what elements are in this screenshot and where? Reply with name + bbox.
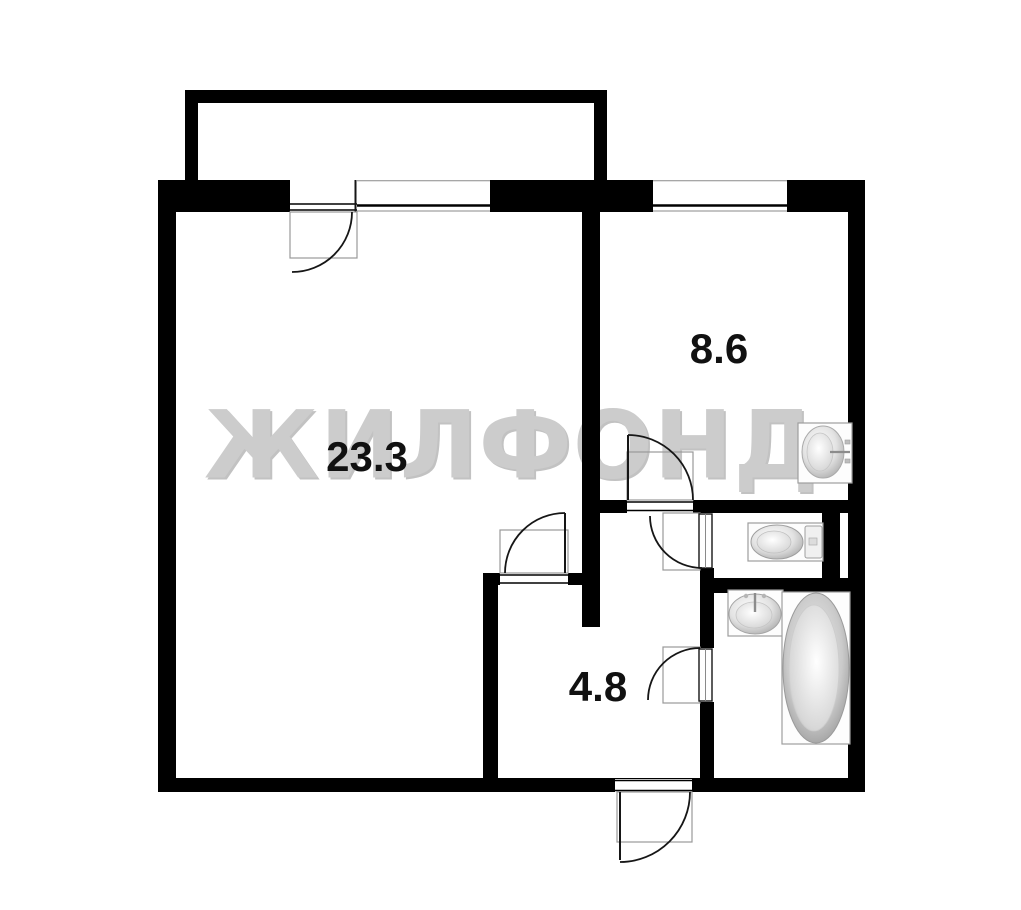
wall-wc-shaft [822, 513, 840, 578]
floor-plan: ЖИЛФОНД [0, 0, 1021, 910]
wall-hall-right-lower [700, 702, 714, 778]
exterior-wall-bottom [158, 778, 865, 792]
kitchen-sink [798, 423, 852, 483]
balcony-door [290, 212, 357, 272]
balcony-door-opening [290, 180, 357, 212]
wall-hall-left [483, 585, 498, 778]
balcony-wall-right [594, 103, 607, 180]
kitchen-window [653, 180, 787, 212]
area-label-kitchen: 8.6 [690, 325, 748, 373]
area-label-living-room: 23.3 [326, 433, 408, 481]
bathroom-sink [728, 590, 783, 636]
entrance-door [615, 779, 692, 862]
doors [290, 212, 712, 862]
wall-kitchen-bottom-right [693, 500, 865, 513]
living-room-window [357, 180, 490, 212]
floor-plan-drawing [0, 0, 1021, 910]
kitchen-door [627, 435, 693, 512]
exterior-wall-left [158, 212, 176, 778]
wc-door [650, 513, 712, 570]
area-label-hallway: 4.8 [569, 663, 627, 711]
wall-hall-top-right [568, 573, 600, 585]
living-room-door [500, 513, 568, 584]
bathroom-door [648, 647, 712, 703]
wall-living-kitchen [582, 212, 600, 627]
balcony-wall-top [185, 90, 607, 103]
balcony-wall-left [185, 103, 198, 180]
bathtub [782, 592, 850, 744]
wall-kitchen-bottom-left [590, 500, 627, 513]
toilet [748, 523, 823, 561]
wall-hall-top-left [483, 573, 500, 585]
